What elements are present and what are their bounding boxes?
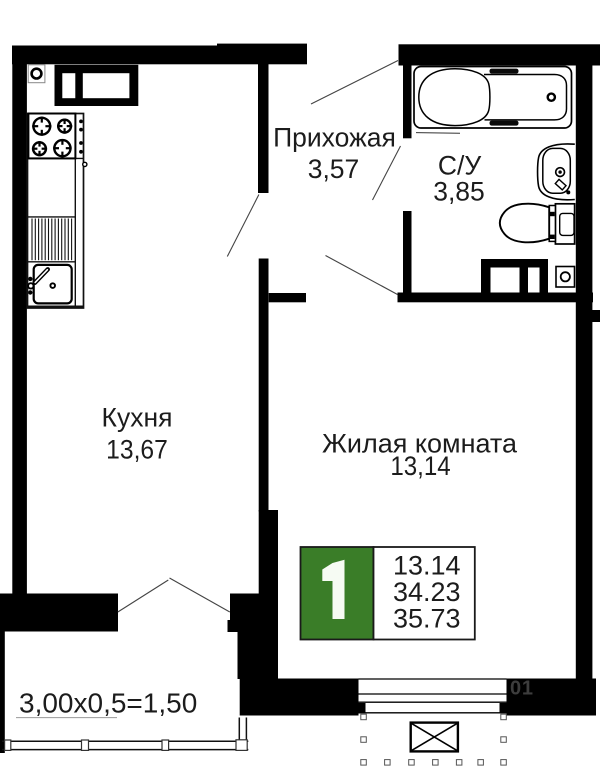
svg-text:3,85: 3,85 (433, 176, 485, 206)
svg-text:3,57: 3,57 (308, 154, 360, 184)
svg-text:01: 01 (510, 678, 534, 700)
svg-text:Прихожая: Прихожая (273, 123, 396, 153)
svg-text:35.73: 35.73 (393, 603, 461, 633)
svg-text:13,67: 13,67 (106, 436, 168, 465)
svg-text:3,00x0,5=1,50: 3,00x0,5=1,50 (19, 688, 197, 719)
svg-text:Кухня: Кухня (102, 402, 173, 432)
svg-text:13,14: 13,14 (390, 452, 450, 481)
